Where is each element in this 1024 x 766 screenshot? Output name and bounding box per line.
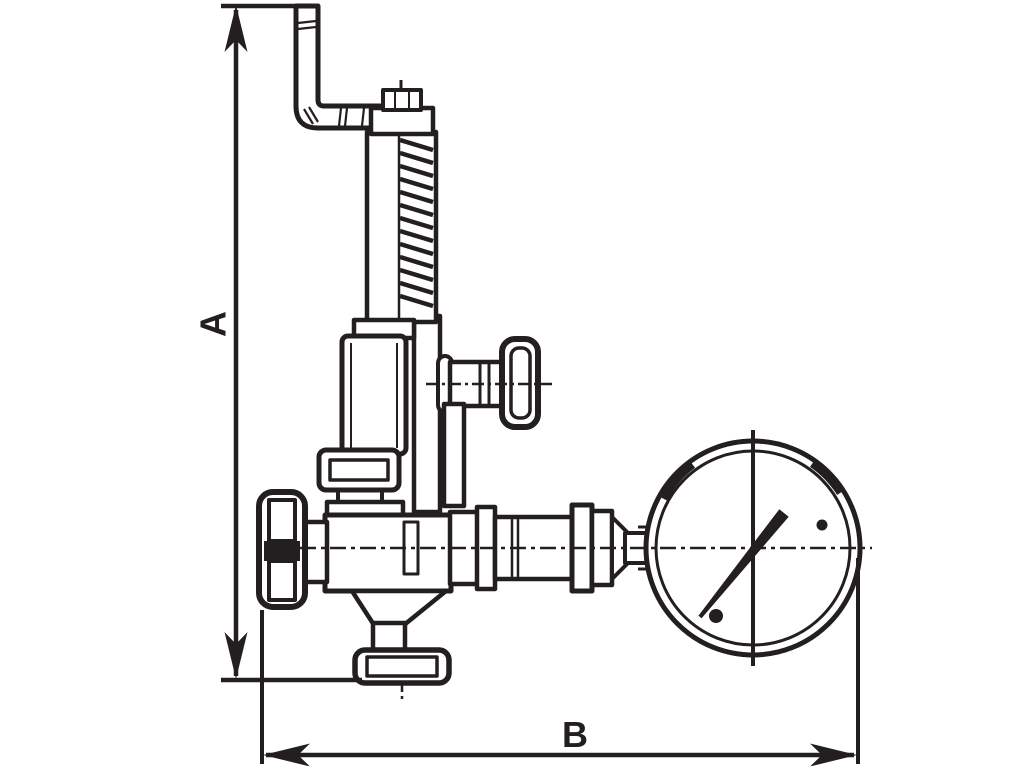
adjusting-nut (383, 90, 421, 110)
vertical-pipe (414, 316, 440, 512)
bonnet-flange-inner (330, 460, 388, 480)
drawing-canvas: A B (0, 0, 1024, 766)
body-bottom-taper (352, 591, 446, 625)
gauge-dial-dot-left (709, 609, 723, 623)
handwheel-window-bottom (269, 561, 295, 600)
gauge-dial-dot-right (817, 520, 828, 531)
valve-body (325, 515, 451, 591)
handwheel-window-top (269, 500, 295, 541)
side-valve-down-pipe (444, 404, 464, 506)
valve-technical-drawing: A B (0, 0, 1024, 766)
dimension-label-b: B (562, 714, 588, 755)
bottom-flange-inner (367, 657, 437, 676)
dimension-label-a: A (193, 311, 234, 337)
bent-lever-pipe (296, 6, 380, 128)
handwheel-hub-band (264, 541, 300, 561)
valve-assembly (259, 6, 653, 702)
